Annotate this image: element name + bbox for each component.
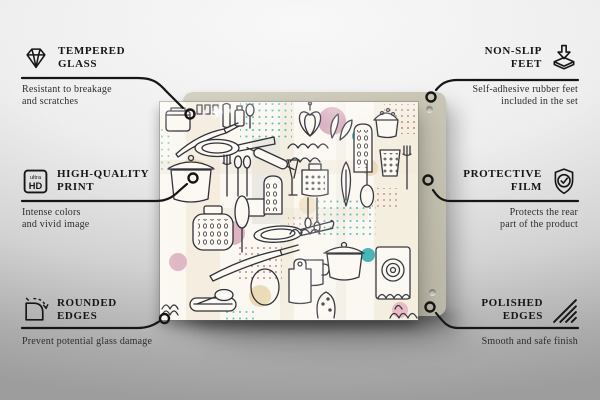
callout-description: Self-adhesive rubber feet included in th… xyxy=(426,84,578,107)
callout-description: Smooth and safe finish xyxy=(426,336,578,348)
rounded-corner-arrow-icon xyxy=(22,297,49,324)
glass-board xyxy=(160,102,418,320)
callout-polished-edges: POLISHED EDGES Smooth and safe finish xyxy=(426,294,578,348)
callout-title: TEMPERED GLASS xyxy=(58,45,125,71)
callout-title: POLISHED EDGES xyxy=(481,297,543,323)
mounting-hole xyxy=(426,106,433,113)
kitchen-doodle-pattern xyxy=(160,102,418,320)
callout-description: Prevent potential glass damage xyxy=(22,336,174,348)
callout-rounded-edges: ROUNDED EDGES Prevent potential glass da… xyxy=(22,294,174,348)
callout-description: Resistant to breakage and scratches xyxy=(22,84,174,107)
diamond-icon xyxy=(22,45,50,72)
hatched-edges-icon xyxy=(551,297,578,324)
callout-title: PROTECTIVE FILM xyxy=(463,168,542,194)
callout-tempered-glass: TEMPERED GLASS Resistant to breakage and… xyxy=(22,42,174,107)
callout-protective-film: PROTECTIVE FILM Protects the rear part o… xyxy=(426,165,578,230)
product-infographic: TEMPERED GLASS Resistant to breakage and… xyxy=(0,0,600,400)
callout-non-slip-feet: NON-SLIP FEET Self-adhesive rubber feet … xyxy=(426,42,578,107)
callout-description: Intense colors and vivid image xyxy=(22,207,174,230)
ultra-hd-icon: ultra HD xyxy=(22,168,49,195)
callout-title: HIGH-QUALITY PRINT xyxy=(57,168,149,194)
svg-text:HD: HD xyxy=(29,180,43,190)
callout-high-quality-print: ultra HD HIGH-QUALITY PRINT Intense colo… xyxy=(22,165,174,230)
callout-title: ROUNDED EDGES xyxy=(57,297,117,323)
shield-check-icon xyxy=(550,167,578,196)
rubber-foot-arrow-icon xyxy=(550,44,578,72)
callout-description: Protects the rear part of the product xyxy=(426,207,578,230)
callout-title: NON-SLIP FEET xyxy=(485,45,542,71)
